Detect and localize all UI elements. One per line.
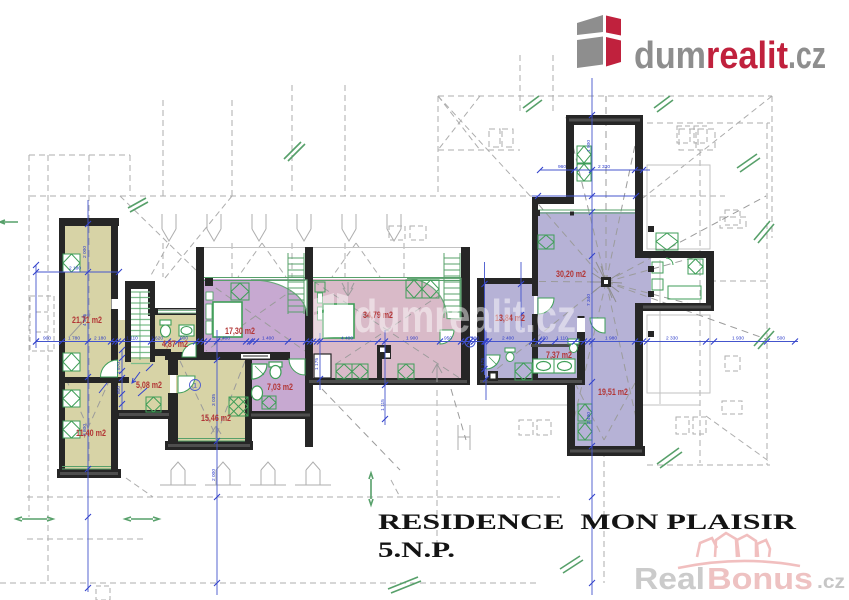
svg-text:960: 960: [558, 164, 566, 170]
svg-text:1 110: 1 110: [126, 336, 138, 342]
svg-text:.cz: .cz: [788, 35, 826, 77]
svg-text:2 400: 2 400: [586, 412, 592, 424]
svg-text:1 175: 1 175: [480, 358, 486, 370]
svg-text:3 035: 3 035: [211, 394, 217, 406]
svg-text:1 400: 1 400: [262, 336, 274, 342]
svg-text:2 400: 2 400: [218, 336, 230, 342]
svg-text:7,37 m2: 7,37 m2: [546, 350, 572, 360]
svg-text:1: 1: [193, 383, 197, 390]
svg-text:500: 500: [777, 336, 785, 342]
svg-text:1 900: 1 900: [586, 140, 592, 152]
svg-text:1 970: 1 970: [116, 362, 122, 374]
svg-text:2 180: 2 180: [94, 336, 106, 342]
svg-text:30,20 m2: 30,20 m2: [556, 269, 586, 279]
svg-text:2 330: 2 330: [666, 336, 678, 342]
svg-text:800: 800: [116, 386, 122, 394]
svg-text:15,46 m2: 15,46 m2: [201, 413, 231, 423]
svg-text:19,51 m2: 19,51 m2: [598, 387, 628, 397]
svg-text:900: 900: [43, 336, 51, 342]
svg-text:2 000: 2 000: [211, 469, 217, 481]
svg-text:Real: Real: [634, 561, 705, 596]
svg-text:realit: realit: [706, 35, 788, 77]
svg-text:dumrealit.cz: dumrealit.cz: [354, 290, 576, 342]
svg-text:7 340: 7 340: [586, 294, 592, 306]
svg-text:5,08 m2: 5,08 m2: [136, 380, 162, 390]
svg-text:2 000: 2 000: [82, 246, 88, 258]
svg-text:21,71 m2: 21,71 m2: [72, 315, 102, 325]
svg-text:2 330: 2 330: [598, 164, 610, 170]
svg-text:1 780: 1 780: [68, 336, 80, 342]
svg-text:2 180: 2 180: [69, 266, 81, 272]
svg-text:4,87 m2: 4,87 m2: [162, 339, 188, 349]
svg-text:Bonus: Bonus: [707, 561, 813, 596]
svg-text:1 175: 1 175: [314, 358, 320, 370]
svg-text:17,30 m2: 17,30 m2: [225, 326, 255, 336]
svg-text:11,40 m2: 11,40 m2: [76, 428, 106, 438]
svg-text:4 400: 4 400: [341, 336, 353, 342]
svg-text:5.N.P.: 5.N.P.: [378, 537, 455, 562]
svg-text:1 980: 1 980: [605, 336, 617, 342]
svg-text:1 115: 1 115: [380, 399, 386, 411]
svg-text:7,03 m2: 7,03 m2: [267, 382, 293, 392]
svg-text:1 930: 1 930: [732, 336, 744, 342]
svg-text:dum: dum: [634, 35, 706, 77]
svg-text:RESIDENCE MON PLAISIR: RESIDENCE MON PLAISIR: [378, 509, 798, 534]
svg-text:.cz: .cz: [817, 572, 845, 593]
